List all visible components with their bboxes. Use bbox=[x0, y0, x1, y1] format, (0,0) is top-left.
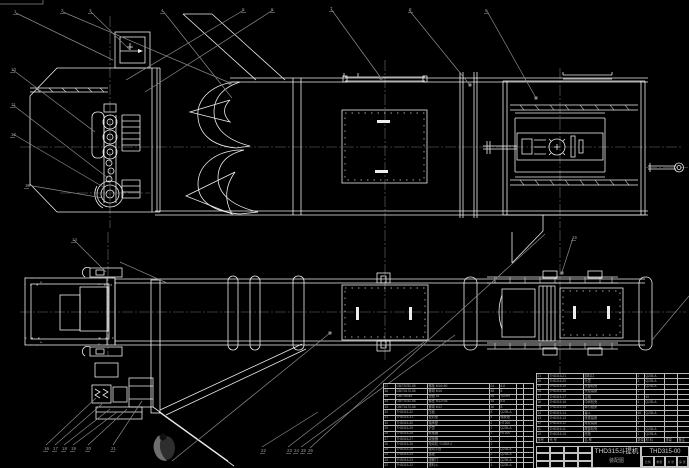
bom-cell bbox=[524, 463, 534, 468]
drawing-subtitle: 装配图 bbox=[593, 457, 640, 464]
leader-dot bbox=[329, 332, 332, 335]
leader-line bbox=[74, 240, 106, 272]
bom-cell: THD315-22 bbox=[396, 463, 428, 468]
drawing-title-cell: THD315斗提机 装配图 bbox=[592, 446, 641, 468]
leader-dot bbox=[561, 272, 564, 275]
frame-corner bbox=[0, 0, 43, 4]
item-balloon: 14 bbox=[72, 237, 78, 242]
bom-header-row: 序号代 号名 称数量材 料重量备注 bbox=[536, 437, 689, 443]
item-balloon: 19 bbox=[71, 446, 77, 451]
leader-line bbox=[13, 105, 108, 178]
inlet-box bbox=[115, 32, 150, 68]
leader-line bbox=[27, 185, 103, 198]
item-balloon: 7 bbox=[330, 6, 333, 11]
item-balloon: 21 bbox=[111, 446, 117, 451]
head-plan bbox=[464, 271, 652, 355]
head-section bbox=[483, 72, 684, 215]
leader-dot bbox=[380, 77, 383, 80]
drive-unit bbox=[92, 363, 153, 419]
item-balloon: 24 bbox=[294, 448, 300, 453]
leader-line bbox=[652, 296, 689, 340]
bom-cell: 备注 bbox=[678, 438, 689, 443]
leader-line bbox=[163, 11, 232, 98]
item-balloon: 15 bbox=[572, 235, 578, 240]
watermark-logo bbox=[154, 434, 175, 462]
item-balloon: 13 bbox=[25, 183, 31, 188]
bom-cell: 材 料 bbox=[645, 438, 665, 443]
item-balloon: 17 bbox=[53, 446, 59, 451]
bom-cell: 重量 bbox=[665, 438, 678, 443]
leader-line bbox=[113, 401, 142, 445]
leader-line bbox=[172, 333, 330, 461]
leader-dot bbox=[469, 84, 472, 87]
bom-table-right: 21THD315-21卸料口1Q235-A20THD315-20头罩1Q235-… bbox=[536, 373, 689, 438]
item-balloon: 16 bbox=[44, 446, 50, 451]
item-balloon: 8 bbox=[409, 7, 412, 12]
leader-line bbox=[13, 134, 105, 188]
leader-line bbox=[46, 398, 96, 445]
item-balloon: 26 bbox=[308, 448, 314, 453]
drawing-number-cell: THD315-00 比例重量共 张第 张 bbox=[641, 446, 689, 468]
bom-cell: 1 bbox=[490, 463, 500, 468]
leader-line bbox=[145, 10, 273, 92]
leader-line bbox=[64, 409, 110, 445]
title-block-fields: 比例重量共 张第 张 bbox=[642, 456, 688, 467]
bom-cell: Q235-A bbox=[500, 463, 517, 468]
bom-cell: 22 bbox=[384, 463, 396, 468]
bom-cell: 序号 bbox=[537, 438, 549, 443]
leader-line bbox=[487, 11, 536, 98]
elevation-view bbox=[20, 14, 688, 263]
leader-line bbox=[91, 12, 130, 50]
leader-dot bbox=[535, 97, 538, 100]
leader-line bbox=[331, 9, 381, 78]
bom-cell bbox=[517, 463, 524, 468]
leader-line bbox=[88, 409, 127, 445]
leader-line bbox=[409, 10, 470, 85]
bom-table-left: 37GB/T5782-86螺栓 M16×60248.836GB/T6170-86… bbox=[383, 383, 534, 468]
item-balloon: 23 bbox=[287, 448, 293, 453]
item-balloon: 11 bbox=[11, 102, 16, 107]
bom-cell: 代 号 bbox=[549, 438, 584, 443]
item-balloon: 10 bbox=[11, 67, 17, 72]
chain-sprockets bbox=[92, 104, 123, 208]
drawing-title: THD315斗提机 bbox=[593, 447, 640, 457]
item-balloon: 6 bbox=[271, 7, 274, 12]
leader-line bbox=[13, 70, 95, 132]
leader-line bbox=[73, 412, 117, 445]
leader-line bbox=[16, 13, 113, 60]
feed-funnel bbox=[151, 280, 306, 466]
cad-canvas: 1234567891011121314151617181920212223242… bbox=[0, 0, 689, 468]
item-balloon: 20 bbox=[86, 446, 92, 451]
item-balloon: 25 bbox=[301, 448, 307, 453]
bom-cell: 数量 bbox=[637, 438, 645, 443]
signature-grid bbox=[536, 446, 592, 468]
leader-line bbox=[262, 412, 318, 447]
leader-line bbox=[120, 262, 167, 283]
item-balloon: 5 bbox=[242, 7, 245, 12]
bom-cell: 名 称 bbox=[584, 438, 637, 443]
item-balloon: 12 bbox=[11, 132, 17, 137]
boot-plan bbox=[25, 267, 122, 356]
leader-dot bbox=[229, 82, 232, 85]
bucket-profiles bbox=[186, 82, 258, 214]
item-balloon: 22 bbox=[261, 448, 267, 453]
bom-cell: 进料斗 bbox=[428, 463, 490, 468]
leader-line bbox=[126, 10, 244, 80]
leader-line bbox=[63, 12, 230, 83]
leader-line bbox=[562, 238, 573, 272]
inspection-door-elevation bbox=[342, 73, 427, 183]
item-balloon: 18 bbox=[62, 446, 68, 451]
